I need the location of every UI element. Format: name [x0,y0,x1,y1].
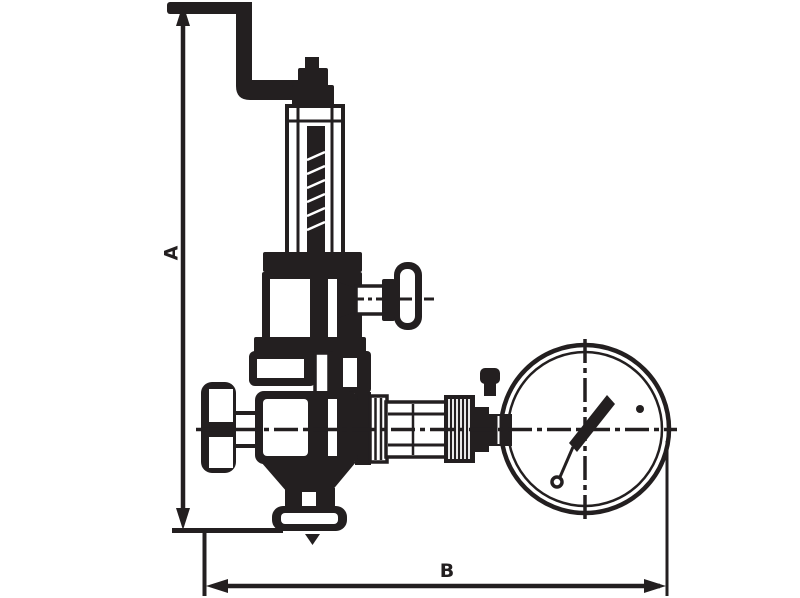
valve-technical-drawing: A B [0,0,800,598]
crank-arm [236,2,300,100]
bonnet-flange [263,252,362,272]
stem-nut-lower [292,85,334,106]
outlet-neck-left [285,488,302,509]
top-port-channel [315,353,329,393]
gauge-connection-union [355,368,512,465]
needle-counterweight [552,477,562,487]
body-top-flange [249,351,371,393]
inlet-flange-window-top [209,389,233,422]
stem-nut-upper [298,68,328,87]
tee-grip-highlight [400,269,415,323]
bleed-screw-stem [484,383,496,396]
dimension-a: A [161,4,191,530]
outlet-neck-right [316,488,335,509]
housing-panel [270,279,310,345]
flow-direction-arrow [305,534,320,545]
dimension-a-arrow-bottom [176,508,190,530]
dimension-b-label: B [440,560,454,582]
threaded-stem [307,126,325,254]
bleed-screw [480,368,500,384]
drawing-canvas: A B [0,0,800,598]
valve-body [234,391,358,509]
body-highlight [328,399,337,456]
top-port-cap-window [343,358,357,387]
bottom-flange-window [281,513,338,524]
bottom-outlet-flange [272,506,347,545]
dimension-b-arrow-left [206,579,228,593]
top-flange-window [257,359,304,378]
housing-highlight [328,279,337,345]
body-taper [261,462,356,492]
dimension-b-arrow-right [644,579,666,593]
body-panel [263,399,308,456]
inlet-flange-window-bottom [209,437,233,468]
spring-bonnet-tube [287,106,343,254]
dimension-a-label: A [161,245,183,260]
dial-dot [636,405,644,413]
adjusting-stem-nut [292,57,334,106]
inlet-union-flange [201,382,236,473]
